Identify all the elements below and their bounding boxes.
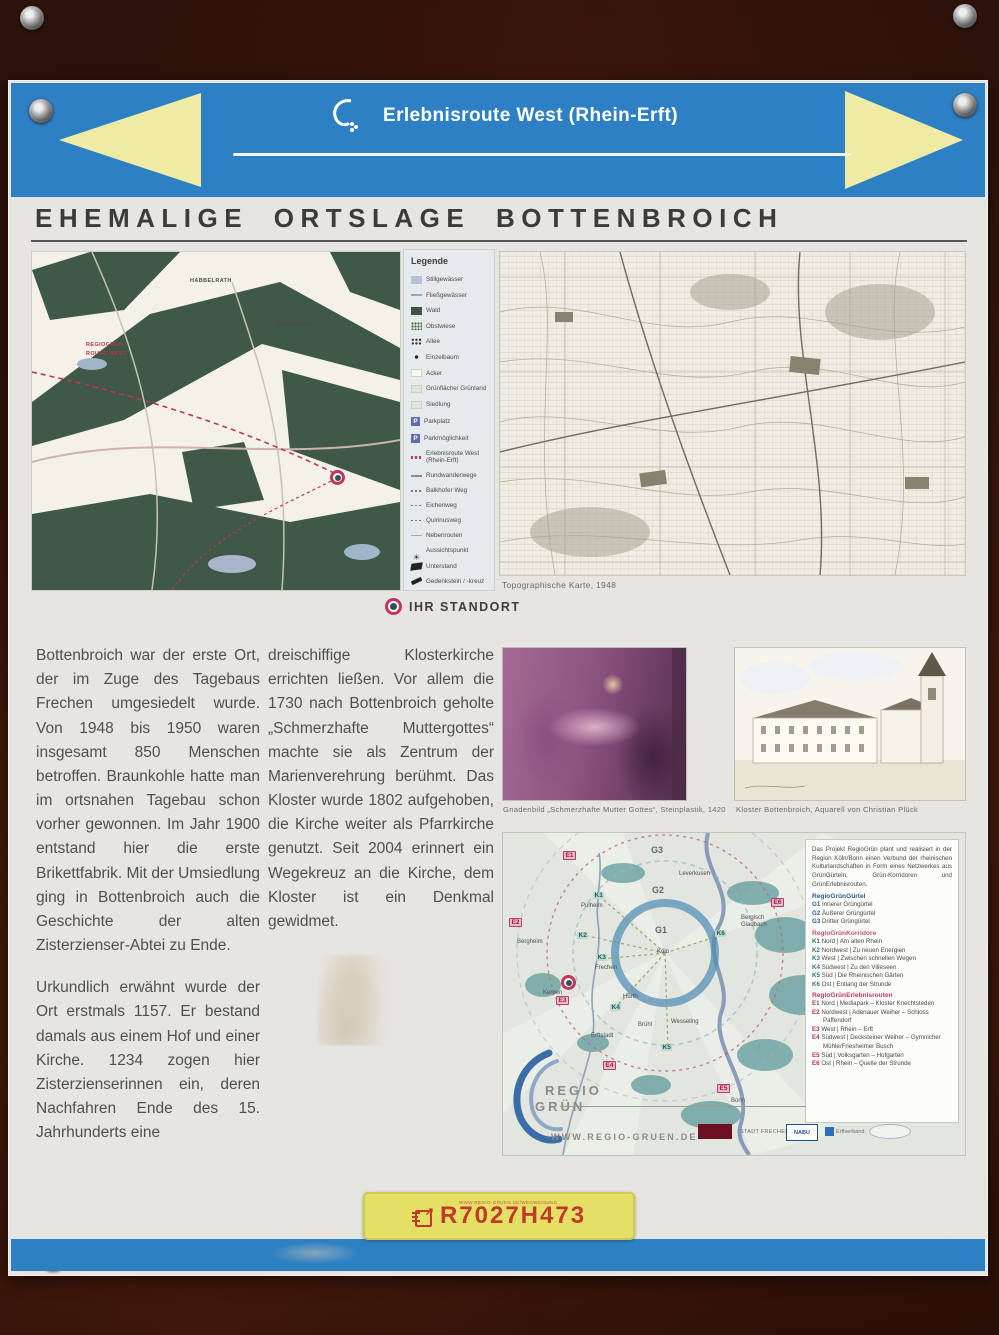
forest-5 xyxy=(32,494,400,590)
regio-item-e4: E4 Südwest | Decksteiner Weiher – Gymnic… xyxy=(812,1034,952,1051)
aussichtspunkt-icon xyxy=(411,547,422,555)
legend-item: Grünfläche/ Grünland xyxy=(411,385,489,393)
footer-band xyxy=(11,1239,985,1271)
screw-top-far-right xyxy=(953,4,977,28)
regio-url: WWW.REGIO-GRUEN.DE xyxy=(551,1132,698,1142)
partner-logo-nabu: NABU xyxy=(786,1124,818,1141)
legend-item: Allee xyxy=(411,338,489,345)
legend-item: Quirinusweg xyxy=(411,517,489,524)
map-badge-k4: K4 xyxy=(610,1004,621,1011)
kloster-caption: Kloster Bottenbroich, Aquarell von Chris… xyxy=(736,805,918,814)
photo-of-information-sign: { "header": { "route_label": "Erlebnisro… xyxy=(0,0,999,1335)
topo-road-3 xyxy=(798,252,821,575)
partner-logo-stadt-frechen: STADT FRECHEN xyxy=(740,1124,790,1139)
regio-section-korridore: RegioGrünKorridore xyxy=(812,930,952,937)
settlement-4 xyxy=(555,312,573,322)
regio-item-k2: K2 Nordwest | Zu neuen Energien xyxy=(812,947,952,956)
lake-3 xyxy=(208,555,256,573)
speckle-3 xyxy=(690,274,770,310)
map-label-pulheim: Pulheim xyxy=(581,903,603,909)
sky-wash-1 xyxy=(740,662,810,694)
kloster-aquarell xyxy=(735,648,965,800)
arrow-left-icon xyxy=(59,93,201,187)
standort-marker-detail-map xyxy=(330,470,345,485)
regio-item-e2: E2 Nordwest | Adenauer Weiher – Schloss … xyxy=(812,1009,952,1026)
legend-item: Fließgewässer xyxy=(411,292,489,299)
legend-item: Gedenkstein / -kreuz xyxy=(411,578,489,585)
regio-intro: Das Projekt RegioGrün plant und realisie… xyxy=(812,846,952,889)
screw-top-far-left xyxy=(20,6,44,30)
band-divider-line xyxy=(233,153,851,156)
regio-item-k3: K3 West | Zwischen schnellen Wegen xyxy=(812,955,952,964)
map-badge-e4: E4 xyxy=(603,1061,616,1070)
standort-icon xyxy=(385,598,402,615)
paragraph-history: Bottenbroich war der erste Ort, der im Z… xyxy=(36,644,260,958)
map-badge-k5: K5 xyxy=(661,1044,672,1051)
wood-speckle xyxy=(530,274,935,557)
topo-map xyxy=(500,252,965,575)
topo-map-graphic xyxy=(500,252,965,575)
code-bar-url: WWW.REGIO-GRUEN.DE/WEGWEISUNG xyxy=(459,1200,558,1205)
speckle-2 xyxy=(530,507,650,557)
contour-2 xyxy=(500,359,965,387)
map-label-habbelrath: HABBELRATH xyxy=(190,278,232,284)
map-label-g1: G1 xyxy=(655,925,667,935)
route-logo-icon xyxy=(327,97,361,138)
map-legend: Legende Stillgewässer Fließgewässer Wald… xyxy=(404,250,494,590)
legend-item: Erlebnisroute West (Rhein-Erft) xyxy=(411,450,489,464)
weathering-patch xyxy=(318,955,388,1045)
parkmoeglichkeit-icon xyxy=(411,434,420,443)
standort-icon-dot xyxy=(390,603,397,610)
regio-item-e5: E5 Süd | Volksgarten – Hofgarten xyxy=(812,1052,952,1061)
legend-title: Legende xyxy=(411,256,489,266)
map-label-erftstadt: Erftstadt xyxy=(591,1033,613,1039)
location-code-bar: WWW.REGIO-GRUEN.DE/WEGWEISUNG ↗ R7027H47… xyxy=(363,1192,635,1240)
legend-item: Aussichtspunkt xyxy=(411,547,489,555)
legend-item: Stillgewässer xyxy=(411,276,489,284)
legend-item: Parkplatz xyxy=(411,417,489,426)
paragraph-kloster: dreischiffige Klosterkirche errichten li… xyxy=(268,644,494,934)
nebenrouten-swatch xyxy=(411,535,422,536)
gedenkstein-icon xyxy=(411,577,422,585)
map-label-g2: G2 xyxy=(652,885,664,895)
legend-item: Nebenrouten xyxy=(411,532,489,539)
route-name: Erlebnisroute West (Rhein-Erft) xyxy=(383,105,678,127)
logo-dot-2 xyxy=(354,125,358,129)
route-logo-svg xyxy=(327,97,361,133)
standort-marker-regio-map xyxy=(561,975,576,990)
topo-caption: Topographische Karte, 1948 xyxy=(502,580,616,590)
map-label-bergheim: Bergheim xyxy=(517,939,543,945)
settlement-1 xyxy=(639,470,667,487)
map-label-huerth: Hürth xyxy=(623,994,638,1000)
regio-item-g2: G2 Äußerer Grüngürtel xyxy=(812,910,952,919)
legend-item: Acker xyxy=(411,369,489,377)
map-label-frechen: Frechen xyxy=(595,965,617,971)
erftverband-mark xyxy=(825,1127,834,1136)
location-code: R7027H473 xyxy=(440,1202,586,1230)
green-8 xyxy=(631,1075,671,1095)
regio-logo-line1: REGIO xyxy=(545,1083,602,1098)
green-4 xyxy=(737,1039,793,1071)
erlebnisroute-swatch xyxy=(411,456,422,458)
regio-item-k1: K1 Nord | Am alten Rhein xyxy=(812,938,952,947)
map-label-leverkusen: Leverkusen xyxy=(679,871,710,877)
lake-1 xyxy=(77,358,107,370)
screw-panel-top-right xyxy=(953,93,977,117)
regio-section-guertel: RegioGrünGürtel xyxy=(812,893,952,900)
weathering-smudge xyxy=(270,1242,360,1264)
regiogruen-panel: G3 G2 G1 Köln Leverkusen Pulheim Berghei… xyxy=(503,833,965,1155)
allee-swatch xyxy=(411,338,422,345)
tower-window xyxy=(928,688,936,700)
ground-wash xyxy=(735,760,965,800)
article-column-1: Bottenbroich war der erste Ort, der im Z… xyxy=(36,644,260,1163)
logo-dot-1 xyxy=(350,122,354,126)
legend-item: Balkhofer Weg xyxy=(411,487,489,494)
sms-export-icon: ↗ xyxy=(412,1207,432,1225)
map-badge-e2: E2 xyxy=(509,918,522,927)
legend-item: Unterstand xyxy=(411,563,489,570)
balkhofer-weg-swatch xyxy=(411,490,422,492)
legend-item: Einzelbaum xyxy=(411,353,489,361)
main-building xyxy=(753,718,877,763)
map-badge-e3: E3 xyxy=(556,996,569,1005)
speckle-1 xyxy=(825,284,935,340)
green-6 xyxy=(601,863,645,883)
contour-3 xyxy=(500,417,965,442)
regio-item-e6: E6 Ost | Rhein – Quelle der Strunde xyxy=(812,1060,952,1069)
standort-label: IHR STANDORT xyxy=(409,600,521,614)
settlement-3 xyxy=(905,477,929,489)
icon-arrow: ↗ xyxy=(425,1205,434,1218)
forest-6 xyxy=(330,252,400,310)
regio-item-g1: G1 Innerer Grüngürtel xyxy=(812,901,952,910)
regio-item-g3: G3 Dritter Grüngürtel xyxy=(812,918,952,927)
acker-swatch xyxy=(411,369,422,377)
fliessgewaesser-swatch xyxy=(411,294,422,296)
legend-item: Parkmöglichkeit xyxy=(411,434,489,443)
detail-map: HABBELRATH GREFRATH REGIOGRÜN ROUTE WEST xyxy=(32,252,400,590)
title-rule xyxy=(31,240,967,242)
map-badge-e1: E1 xyxy=(563,851,576,860)
legend-item: Wald xyxy=(411,307,489,315)
lake-2 xyxy=(344,544,380,560)
header-band: Erlebnisroute West (Rhein-Erft) xyxy=(11,83,985,197)
legend-item: Siedlung xyxy=(411,401,489,409)
obstwiese-swatch xyxy=(411,322,422,330)
regio-legend-box: Das Projekt RegioGrün plant und realisie… xyxy=(806,840,958,1122)
partner-logo-erftverband: Erftverband xyxy=(823,1124,864,1139)
parkplatz-icon xyxy=(411,417,420,426)
unterstand-icon xyxy=(410,562,423,570)
forest-4 xyxy=(182,442,264,510)
wald-swatch xyxy=(411,307,422,315)
partner-logo-swirl xyxy=(869,1124,911,1139)
regio-item-k6: K6 Ost | Entlang der Strunde xyxy=(812,981,952,990)
map-badge-k2: K2 xyxy=(577,932,588,939)
paragraph-founding: Urkundlich erwähnt wurde der Ort erstmal… xyxy=(36,976,260,1145)
legend-item: Eichenweg xyxy=(411,502,489,509)
einzelbaum-swatch xyxy=(411,353,422,361)
map-badge-k6: K6 xyxy=(715,930,726,937)
map-label-bonn: Bonn xyxy=(731,1098,745,1104)
page-title: EHEMALIGE ORTSLAGE BOTTENBROICH xyxy=(35,203,783,234)
main-roof xyxy=(753,700,877,718)
regio-item-e1: E1 Nord | Mediapark – Kloster Knechtsted… xyxy=(812,1000,952,1009)
map-label-route-west: ROUTE WEST xyxy=(86,351,127,357)
settlement-2 xyxy=(789,356,821,375)
kloster-drawing xyxy=(735,648,965,800)
map-label-regiogruen: REGIOGRÜN xyxy=(86,342,124,348)
article-column-2: dreischiffige Klosterkirche errichten li… xyxy=(268,644,494,952)
rundwanderwege-swatch xyxy=(411,475,422,477)
regio-section-erlebnisrouten: RegioGrünErlebnisrouten xyxy=(812,992,952,999)
map-label-g3: G3 xyxy=(651,845,663,855)
screw-panel-top-left xyxy=(29,99,53,123)
contour-4 xyxy=(500,479,965,503)
map-label-bergisch-gladbach: Bergisch Gladbach xyxy=(741,915,783,929)
gruenflaeche-swatch xyxy=(411,385,422,393)
regio-item-k4: K4 Südwest | Zu den Villeseen xyxy=(812,964,952,973)
logo-swirl xyxy=(335,101,351,125)
standort-key: IHR STANDORT xyxy=(385,598,521,615)
legend-item: Obstwiese xyxy=(411,322,489,330)
legend-item: Rundwanderwege xyxy=(411,472,489,479)
map-label-koeln: Köln xyxy=(657,949,669,955)
regio-footer-rule xyxy=(560,1106,806,1107)
map-label-bruehl: Brühl xyxy=(638,1022,652,1028)
regio-item-e3: E3 West | Rhein – Erft xyxy=(812,1026,952,1035)
regio-item-k5: K5 Süd | Die Rheinischen Gärten xyxy=(812,972,952,981)
detail-map-graphic xyxy=(32,252,400,590)
map-badge-k3: K3 xyxy=(596,954,607,961)
logo-dot-3 xyxy=(350,128,354,132)
tower-spire xyxy=(918,652,946,676)
sky-wash-2 xyxy=(810,652,900,680)
map-badge-k1: K1 xyxy=(593,892,604,899)
map-badge-e6: E6 xyxy=(771,898,784,907)
map-label-grefrath: GREFRATH xyxy=(276,322,309,328)
standort-marker-dot xyxy=(566,980,572,986)
quirinusweg-swatch xyxy=(411,520,422,522)
map-badge-e5: E5 xyxy=(717,1084,730,1093)
siedlung-swatch xyxy=(411,401,422,409)
stillgewaesser-swatch xyxy=(411,276,422,284)
partner-logo-darkred xyxy=(698,1124,732,1139)
pieta-photo xyxy=(503,648,686,800)
arrow-right-icon xyxy=(845,91,963,189)
eichenweg-swatch xyxy=(411,505,422,507)
standort-marker-dot xyxy=(335,475,341,481)
map-label-wesseling: Wesseling xyxy=(671,1019,699,1025)
forest-areas xyxy=(32,252,400,590)
pieta-caption: Gnadenbild „Schmerzhafte Mutter Gottes“,… xyxy=(503,805,726,814)
